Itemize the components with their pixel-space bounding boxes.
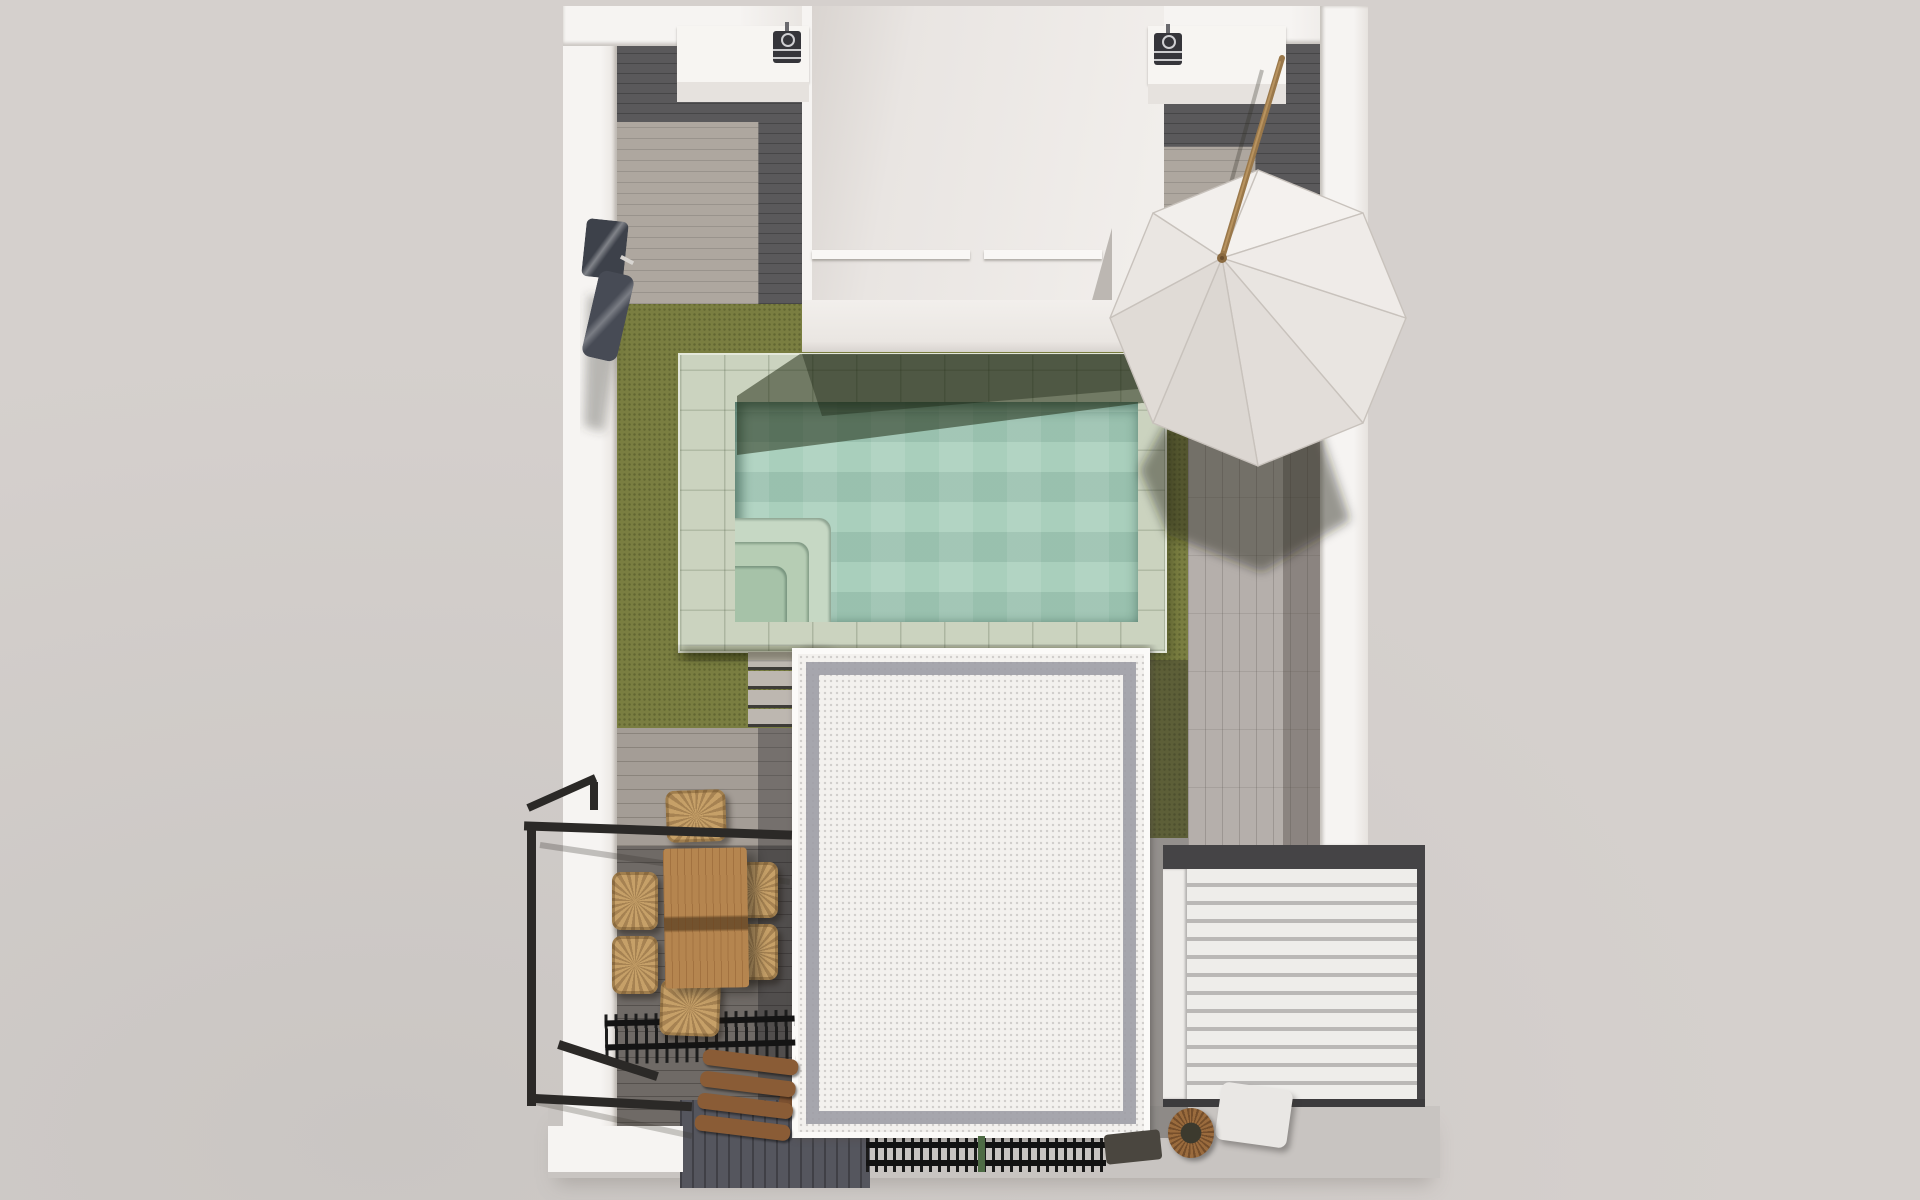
outer-wall-right [1320, 6, 1368, 846]
ac-fan-icon [1162, 35, 1176, 49]
ac-condenser-icon-left [772, 22, 802, 68]
south-parapet-wall [802, 300, 1320, 352]
pergola-beam [1163, 845, 1425, 869]
pergola-edge-right [1417, 845, 1425, 1107]
ac-platform-left-front [677, 82, 809, 102]
roof-gravel-border [806, 662, 1136, 1124]
roof-block [792, 648, 1150, 1138]
wooden-bench [693, 1048, 799, 1149]
outer-wall-left [563, 6, 617, 1136]
rooftop-terrace-render [0, 0, 1920, 1200]
pool-water [735, 402, 1138, 622]
bench-slat [694, 1114, 791, 1142]
pergola-louver-slats [1187, 869, 1417, 1099]
ac-condenser-icon-right [1153, 24, 1183, 70]
floor-grate [866, 1138, 1106, 1172]
grate-rail [866, 1160, 1106, 1166]
railing-corner-post [590, 782, 598, 810]
louvered-pergola [1163, 845, 1425, 1107]
dark-garden-item [1104, 1129, 1163, 1165]
dining-chair-west-1 [612, 872, 658, 930]
pergola-edge-bottom [1163, 1099, 1425, 1107]
railing-left-bar [527, 828, 536, 1106]
pergola-edge-left [1163, 869, 1187, 1099]
dining-table [663, 847, 749, 988]
white-lounge-piece [1214, 1081, 1293, 1148]
dining-chair-west-2 [612, 936, 658, 994]
pool-step-3 [735, 566, 787, 622]
ac-fan-icon [781, 33, 795, 47]
planter-strip [978, 1136, 985, 1172]
bottom-left-wall-face [548, 1126, 683, 1172]
right-wall-shadow-on-patio [1283, 352, 1320, 846]
grate-rail [866, 1142, 1106, 1148]
recess-ledge-right [984, 250, 1102, 259]
planter-pot [1168, 1108, 1214, 1158]
ac-platform-right-front [1148, 84, 1286, 104]
comb-rail [605, 1040, 795, 1051]
recess-ledge-left [812, 250, 970, 259]
